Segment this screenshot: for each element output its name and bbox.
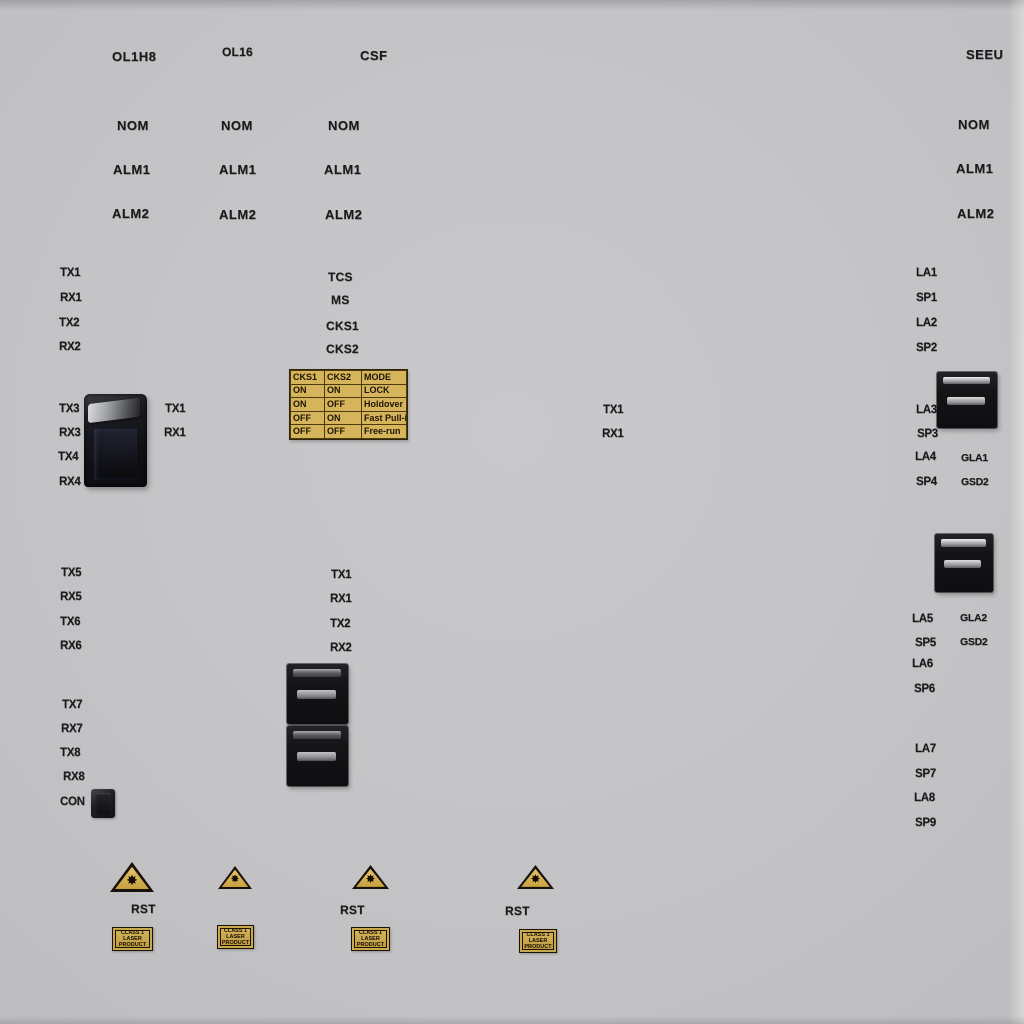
class1-laser-sticker: CLASS 1 LASER PRODUCT <box>351 927 390 951</box>
led-label-nom: NOM <box>117 118 149 133</box>
fiber-connector-left[interactable] <box>84 394 147 487</box>
table-cell: ON <box>325 384 362 398</box>
panel-edge-top-shadow <box>0 0 1024 10</box>
port-label-la5: LA5 <box>912 613 933 625</box>
port-label-la2: LA2 <box>916 317 937 329</box>
table-header-cks1: CKS1 <box>291 371 325 385</box>
led-label-alm1: ALM1 <box>219 162 256 177</box>
adapter-slot-top <box>941 539 986 547</box>
rst-button-label[interactable]: RST <box>505 904 530 918</box>
adapter-slot-bottom <box>944 560 981 569</box>
adapter-slot-bottom <box>297 690 336 699</box>
rst-button-label[interactable]: RST <box>131 902 156 916</box>
port-label-sp2: SP2 <box>916 342 937 354</box>
sticker-line: PRODUCT <box>524 944 551 950</box>
led-label-nom: NOM <box>221 118 253 133</box>
port-label-tx4: TX4 <box>58 451 78 463</box>
connector-slot <box>94 429 137 479</box>
table-cell: Holdover <box>362 398 407 412</box>
led-label-alm2: ALM2 <box>112 206 149 221</box>
card-label-ol1h8: OL1H8 <box>112 49 156 64</box>
port-label-tx1: TX1 <box>60 267 80 279</box>
led-label-nom: NOM <box>958 117 990 132</box>
led-label-alm2: ALM2 <box>957 206 994 221</box>
fiber-adapter-center-2[interactable] <box>287 726 348 786</box>
laser-warning-triangle: ✸ <box>218 866 252 889</box>
port-label-con: CON <box>60 796 85 808</box>
console-connector[interactable] <box>91 789 115 818</box>
table-header-mode: MODE <box>362 371 407 385</box>
port-label-rx6: RX6 <box>60 640 81 652</box>
sticker-text-frame: CLASS 1 LASER PRODUCT <box>354 930 387 948</box>
port-label-tx3: TX3 <box>59 403 79 415</box>
adapter-slot-bottom <box>947 397 985 405</box>
card-label-csf: CSF <box>360 48 388 63</box>
laser-warning-triangle: ✸ <box>352 865 389 889</box>
port-label-tx6: TX6 <box>60 616 80 628</box>
cks-mode-table: CKS1 CKS2 MODE ON ON LOCK ON OFF Holdove… <box>289 369 408 440</box>
port-label-la7: LA7 <box>915 743 936 755</box>
led-label-alm1: ALM1 <box>324 162 361 177</box>
fiber-adapter-right-1[interactable] <box>937 372 997 428</box>
port-label-tx8: TX8 <box>60 747 80 759</box>
laser-burst-icon: ✸ <box>530 873 540 885</box>
table-header-cks2: CKS2 <box>325 371 362 385</box>
led-label-nom: NOM <box>328 118 360 133</box>
port-label-tx2: TX2 <box>330 618 350 630</box>
table-cell: ON <box>325 411 362 425</box>
port-label-tx1: TX1 <box>165 403 185 415</box>
status-label-tcs: TCS <box>328 270 353 284</box>
sticker-line: PRODUCT <box>357 942 384 948</box>
port-label-la6: LA6 <box>912 658 933 670</box>
status-label-ms: MS <box>331 293 349 307</box>
port-label-tx7: TX7 <box>62 699 82 711</box>
table-cell: Free-run <box>362 425 407 439</box>
status-label-cks1: CKS1 <box>326 319 359 333</box>
sticker-text-frame: CLASS 1 LASER PRODUCT <box>220 928 251 946</box>
card-label-ol16: OL16 <box>222 45 253 59</box>
port-label-rx1: RX1 <box>330 593 351 605</box>
port-label-la4: LA4 <box>915 451 936 463</box>
port-label-tx5: TX5 <box>61 567 81 579</box>
sticker-line: PRODUCT <box>119 942 146 948</box>
port-label-rx3: RX3 <box>59 427 80 439</box>
sticker-line: PRODUCT <box>222 940 249 946</box>
led-label-alm2: ALM2 <box>325 207 362 222</box>
port-label-rx2: RX2 <box>330 642 351 654</box>
laser-burst-icon: ✸ <box>230 874 239 885</box>
port-label-rx1: RX1 <box>602 428 623 440</box>
led-label-alm2: ALM2 <box>219 207 256 222</box>
sticker-text-frame: CLASS 1 LASER PRODUCT <box>115 930 150 948</box>
port-label-tx1: TX1 <box>603 404 623 416</box>
port-label-sp1: SP1 <box>916 292 937 304</box>
port-label-sp3: SP3 <box>917 428 938 440</box>
sticker-text-frame: CLASS 1 LASER PRODUCT <box>522 932 554 950</box>
port-label-gla1: GLA1 <box>961 452 988 464</box>
adapter-slot-top <box>293 731 341 739</box>
port-label-rx5: RX5 <box>60 591 81 603</box>
led-label-alm1: ALM1 <box>956 161 993 176</box>
laser-warning-triangle: ✸ <box>110 862 154 892</box>
port-label-rx1: RX1 <box>164 427 185 439</box>
port-label-gla2: GLA2 <box>960 612 987 624</box>
table-cell: LOCK <box>362 384 407 398</box>
status-label-cks2: CKS2 <box>326 342 359 356</box>
laser-warning-triangle: ✸ <box>517 865 554 889</box>
port-label-sp4: SP4 <box>916 476 937 488</box>
port-label-sp7: SP7 <box>915 768 936 780</box>
panel-edge-bottom-shadow <box>0 1016 1024 1024</box>
port-label-tx1: TX1 <box>331 569 351 581</box>
panel-edge-right-highlight <box>1008 0 1024 1024</box>
port-label-gsd2: GSD2 <box>960 636 987 648</box>
port-label-rx4: RX4 <box>59 476 80 488</box>
port-label-rx2: RX2 <box>59 341 80 353</box>
fiber-adapter-center-1[interactable] <box>287 664 348 724</box>
card-label-seeu: SEEU <box>966 47 1003 62</box>
fiber-adapter-right-2[interactable] <box>935 534 993 592</box>
table-cell: OFF <box>325 398 362 412</box>
led-label-alm1: ALM1 <box>113 162 150 177</box>
port-label-la8: LA8 <box>914 792 935 804</box>
port-label-sp9: SP9 <box>915 817 936 829</box>
laser-burst-icon: ✸ <box>126 873 138 887</box>
table-cell: OFF <box>291 425 325 439</box>
connector-latch <box>88 397 140 422</box>
class1-laser-sticker: CLASS 1 LASER PRODUCT <box>112 927 153 951</box>
rst-button-label[interactable]: RST <box>340 903 365 917</box>
adapter-slot-bottom <box>297 752 336 761</box>
port-label-tx2: TX2 <box>59 317 79 329</box>
port-label-la3: LA3 <box>916 404 937 416</box>
port-label-sp5: SP5 <box>915 637 936 649</box>
adapter-slot-top <box>943 377 990 384</box>
table-cell: OFF <box>291 411 325 425</box>
adapter-slot-top <box>293 669 341 677</box>
port-label-gsd2: GSD2 <box>961 476 988 488</box>
console-connector-socket <box>96 793 110 814</box>
port-label-la1: LA1 <box>916 267 937 279</box>
cks-mode-table-grid: CKS1 CKS2 MODE ON ON LOCK ON OFF Holdove… <box>290 370 407 439</box>
table-cell: OFF <box>325 425 362 439</box>
table-cell: ON <box>291 398 325 412</box>
table-cell: ON <box>291 384 325 398</box>
port-label-rx1: RX1 <box>60 292 81 304</box>
class1-laser-sticker: CLASS 1 LASER PRODUCT <box>217 925 254 949</box>
table-cell: Fast Pull-in <box>362 411 407 425</box>
port-label-rx7: RX7 <box>61 723 82 735</box>
port-label-rx8: RX8 <box>63 771 84 783</box>
laser-burst-icon: ✸ <box>365 873 375 885</box>
class1-laser-sticker: CLASS 1 LASER PRODUCT <box>519 929 557 953</box>
port-label-sp6: SP6 <box>914 683 935 695</box>
